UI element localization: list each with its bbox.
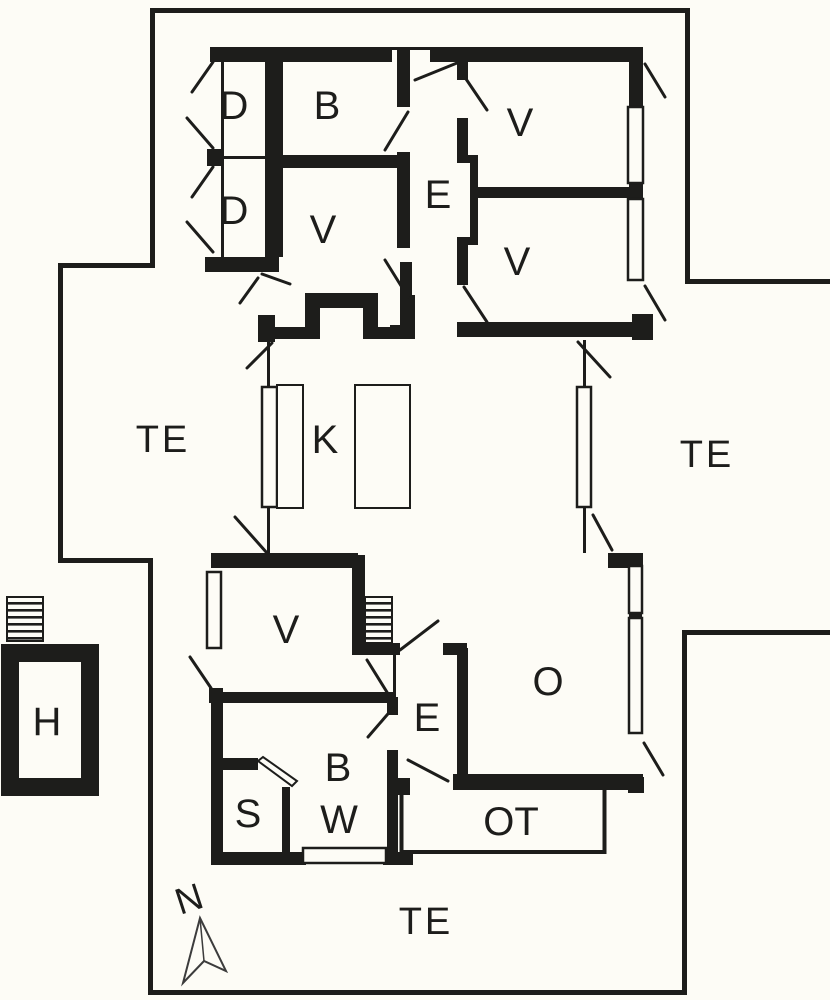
door-leaf-s [258, 757, 297, 786]
door-swings [187, 62, 665, 781]
annex-label-h: H [33, 702, 62, 742]
room-label-v1: V [310, 210, 337, 250]
room-label-v4: V [273, 610, 300, 650]
north-arrow-icon [183, 918, 226, 983]
room-label-d1: D [220, 86, 249, 126]
terrace-label-east: TE [680, 436, 735, 474]
room-label-e2: E [414, 698, 441, 738]
stairs-annex [7, 597, 43, 641]
room-label-d2: D [220, 191, 249, 231]
room-label-s: S [235, 794, 262, 834]
room-label-e1: E [425, 175, 452, 215]
room-label-v2: V [507, 103, 534, 143]
room-label-w: W [320, 800, 358, 840]
room-label-o: O [532, 662, 563, 702]
terrace-label-ot: OT [483, 802, 539, 842]
plot-boundary [61, 11, 830, 993]
stairs-main [365, 597, 392, 643]
room-label-b2: B [325, 748, 352, 788]
terrace-label-south: TE [399, 903, 454, 941]
room-label-v3: V [504, 242, 531, 282]
terrace-label-west: TE [136, 421, 191, 459]
floor-plan-page: D D B V E V V TE K TE V O E B W S OT TE … [0, 0, 830, 1000]
annex-h [1, 597, 99, 796]
floor-plan-drawing [0, 0, 830, 1000]
room-label-k: K [312, 420, 339, 460]
kitchen-counters [277, 385, 410, 508]
room-label-b1: B [314, 86, 341, 126]
